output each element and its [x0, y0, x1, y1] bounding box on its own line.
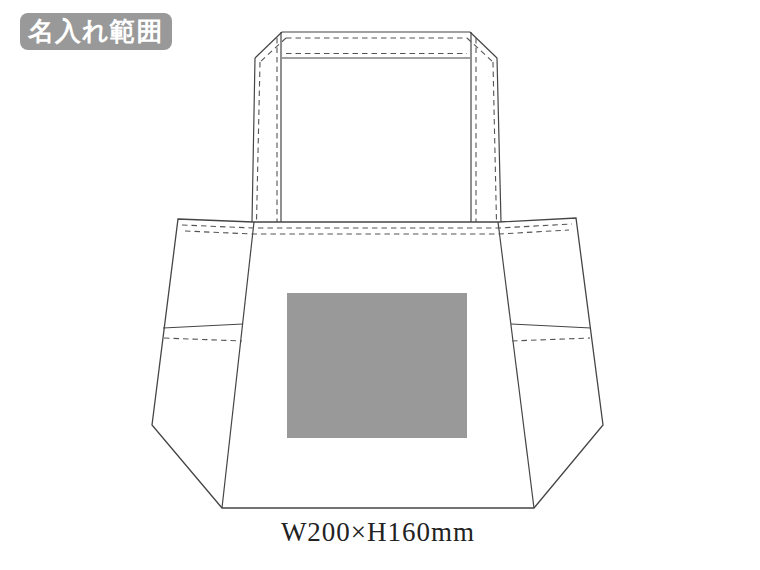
handle-stitching — [257, 38, 497, 222]
diagram-stage: 名入れ範囲 — [0, 0, 760, 570]
handle-right-outer-stitch — [493, 62, 497, 222]
handle — [252, 32, 501, 222]
handle-left-strap-outer — [252, 58, 255, 222]
handle-left-outer-stitch — [257, 62, 261, 222]
print-area-size-label: W200×H160mm — [281, 517, 475, 547]
handle-right-strap-outer — [497, 58, 501, 222]
print-area — [287, 293, 467, 438]
tote-bag-diagram: W200×H160mm — [0, 0, 760, 570]
